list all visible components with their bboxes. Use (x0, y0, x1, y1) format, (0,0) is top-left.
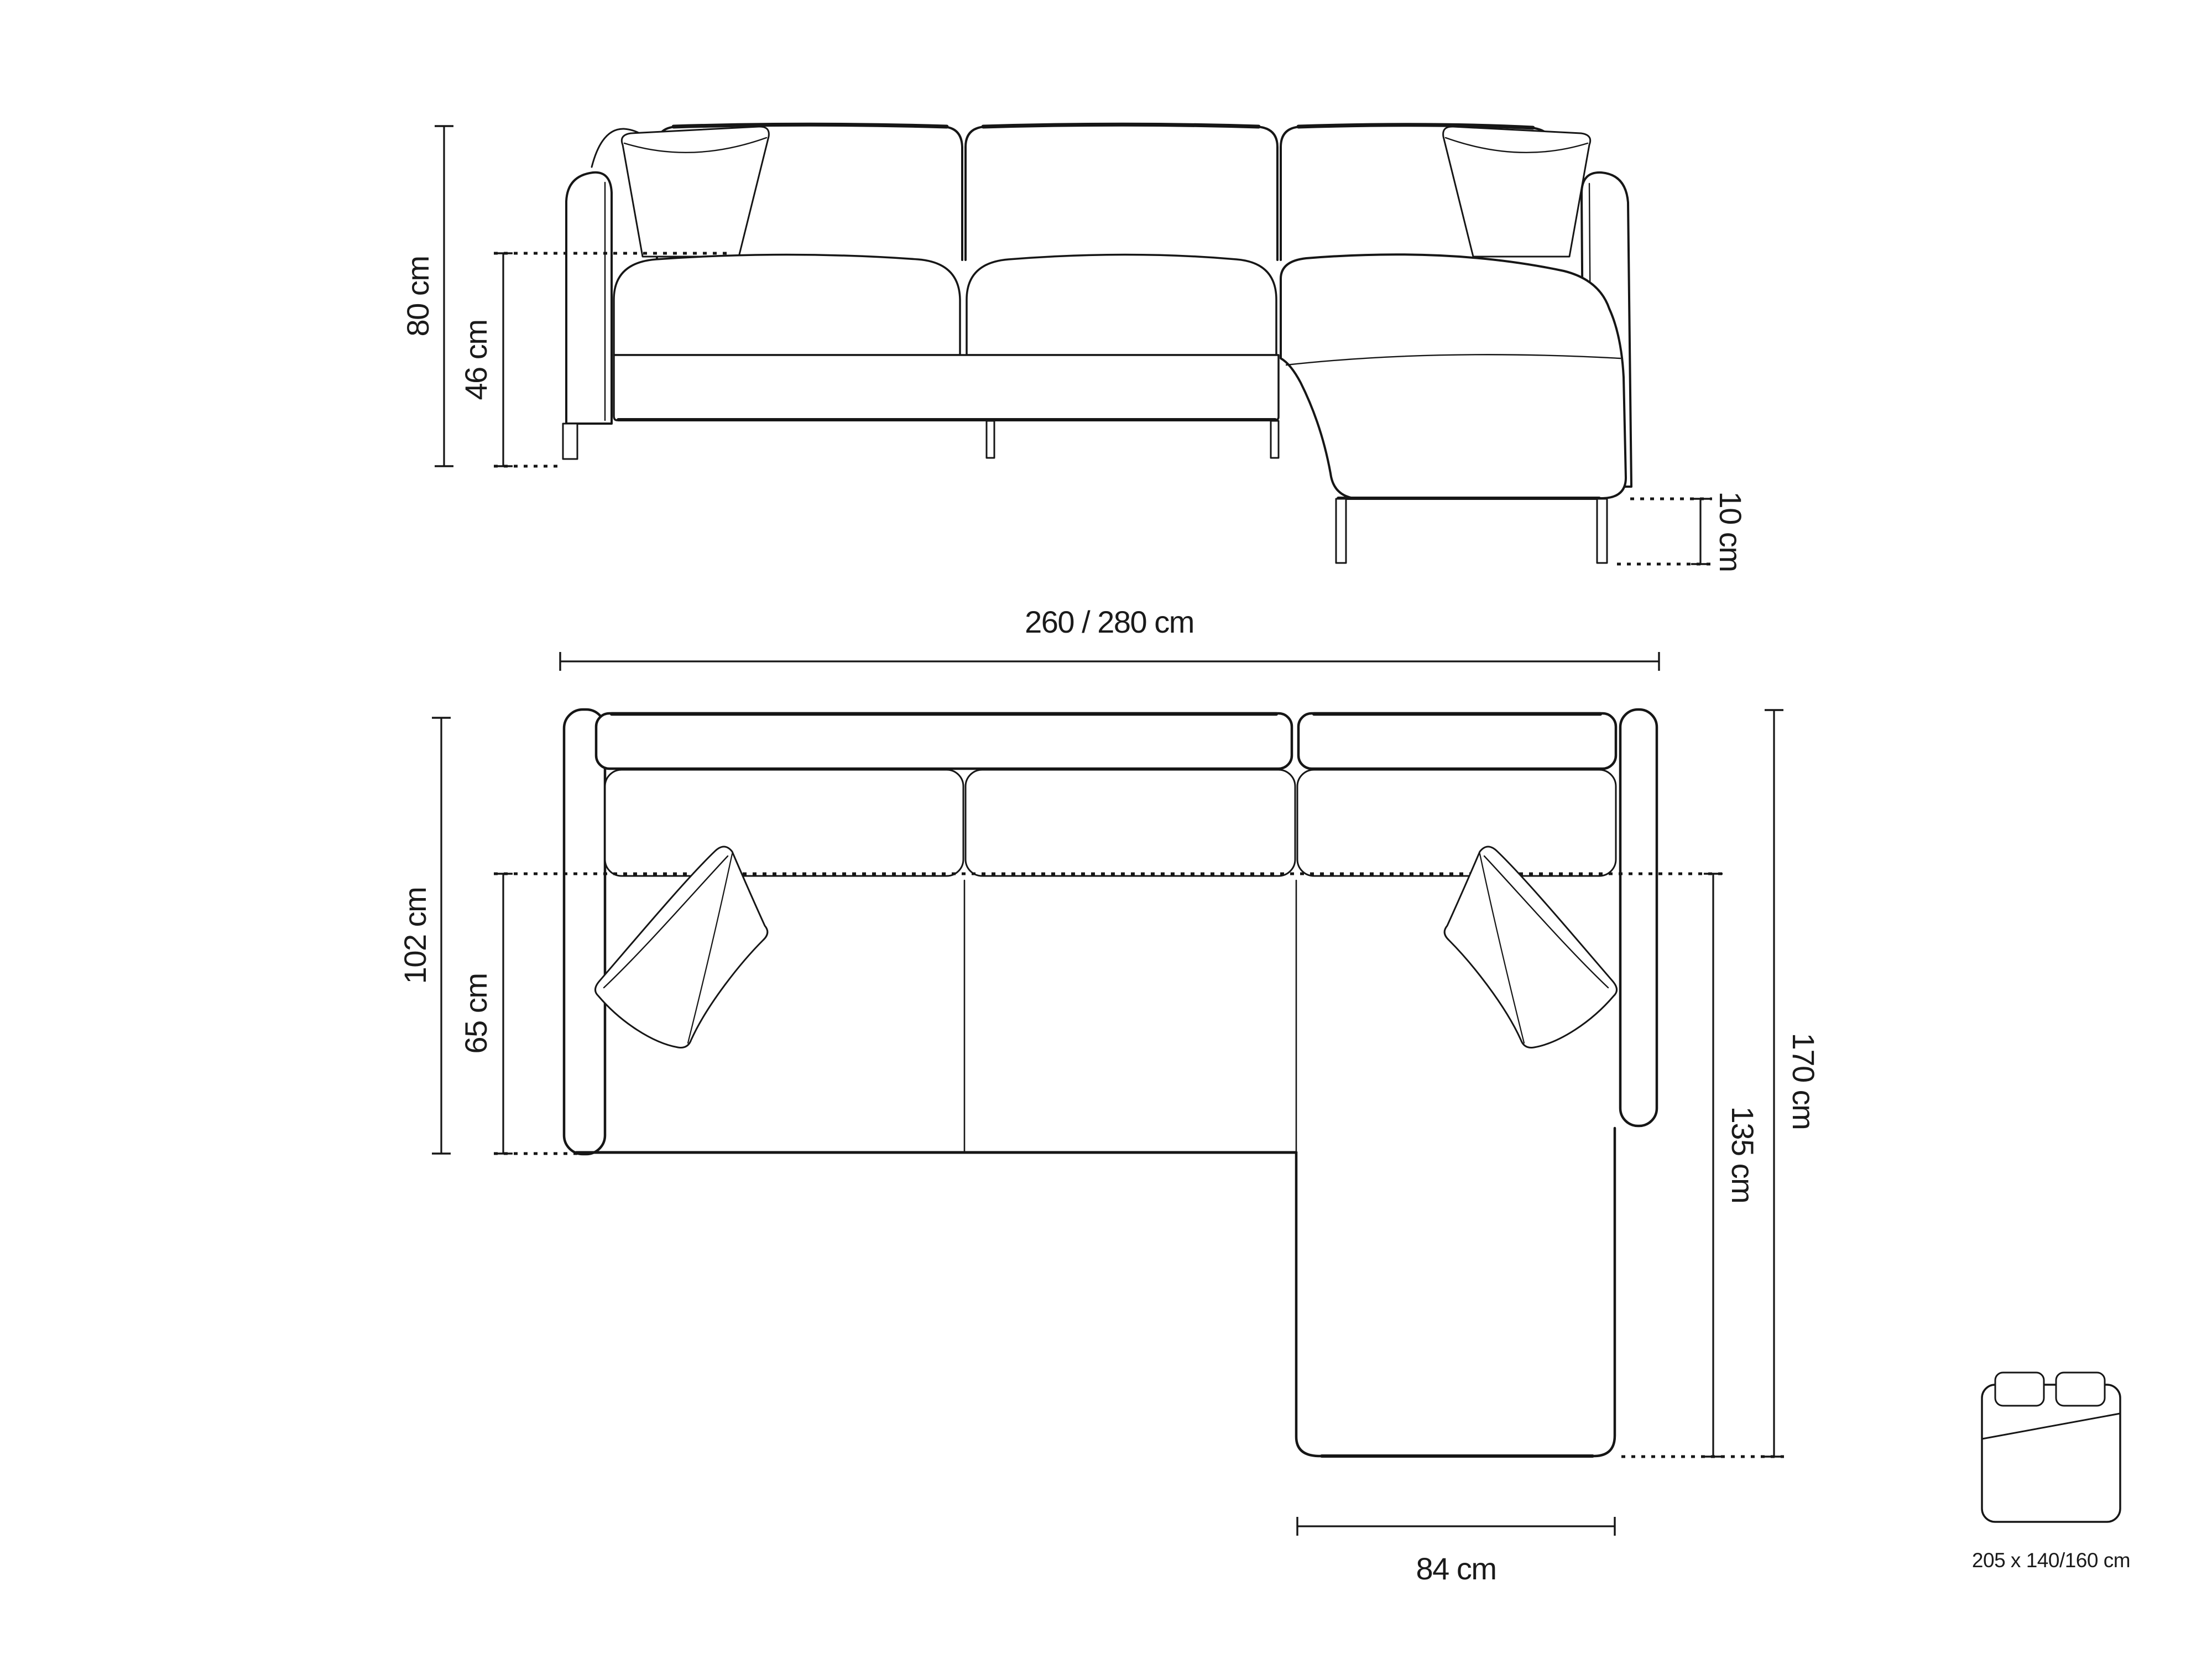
backrest-top-edge-middle (983, 124, 1259, 127)
pillow-top-left (595, 847, 767, 1047)
chaise-top-view (1296, 1128, 1615, 1456)
bed-icon (1982, 1373, 2120, 1522)
dim-label-front-leg-height: 10 cm (1713, 492, 1748, 572)
dim-label-chaise-width: 84 cm (1416, 1551, 1496, 1586)
backrest-top-panel-right (1298, 713, 1616, 769)
backrest-top-edge-left (674, 124, 947, 127)
pillow-front-right (1443, 127, 1590, 257)
dim-label-front-total-height: 80 cm (400, 257, 435, 337)
back-cushion-top-left (605, 770, 963, 876)
pillow-top-right (1444, 847, 1616, 1047)
dim-front-leg-height: 10 cm (1691, 492, 1748, 572)
sofa-base-front (614, 355, 1279, 420)
leg-front-middle (987, 421, 994, 458)
bed-icon-pillow-left (1995, 1373, 2044, 1406)
dim-chaise-total-depth: 170 cm (1765, 710, 1821, 1457)
sleeping-area-legend: 205 x 140/160 cm (1972, 1373, 2130, 1572)
dim-label-total-depth: 102 cm (398, 888, 432, 984)
seat-cushion-front-middle (967, 255, 1276, 356)
dim-label-chaise-depth: 135 cm (1725, 1107, 1760, 1203)
leg-chaise-right (1597, 499, 1607, 563)
dim-label-seat-depth: 65 cm (458, 974, 493, 1054)
leg-front-left (563, 424, 577, 459)
dim-total-width: 260 / 280 cm (560, 604, 1659, 671)
dim-total-depth: 102 cm (398, 718, 451, 1154)
back-cushion-top-right (1297, 770, 1616, 876)
back-cushion-top-middle (966, 770, 1295, 876)
dim-front-total-height: 80 cm (400, 126, 453, 466)
seat-cushion-front-left (614, 255, 960, 356)
dim-front-seat-height: 46 cm (458, 253, 513, 466)
dim-chaise-depth: 135 cm (1704, 874, 1760, 1457)
leg-front-inner (1271, 421, 1279, 458)
front-view: 80 cm 46 cm 10 cm (400, 124, 1748, 572)
dim-seat-depth: 65 cm (458, 874, 513, 1154)
leg-chaise-left (1336, 499, 1346, 563)
dim-chaise-width: 84 cm (1297, 1517, 1615, 1586)
armrest-top-left (564, 709, 605, 1154)
bed-icon-pillow-right (2056, 1373, 2105, 1406)
top-view: 260 / 280 cm 102 cm 65 cm 135 cm 170 cm (398, 604, 1821, 1586)
chaise-front (1281, 254, 1626, 499)
seat-division-lines (964, 880, 1296, 1151)
dim-label-total-width: 260 / 280 cm (1025, 604, 1194, 639)
dim-label-chaise-total-depth: 170 cm (1786, 1033, 1821, 1130)
backrest-top-panel-left (596, 713, 1292, 769)
armrest-top-right (1620, 709, 1657, 1126)
dim-label-front-seat-height: 46 cm (458, 320, 493, 400)
sleeping-area-label: 205 x 140/160 cm (1972, 1549, 2130, 1572)
backrest-section-middle (966, 124, 1277, 260)
sofa-dimension-diagram: 80 cm 46 cm 10 cm (0, 0, 2212, 1659)
